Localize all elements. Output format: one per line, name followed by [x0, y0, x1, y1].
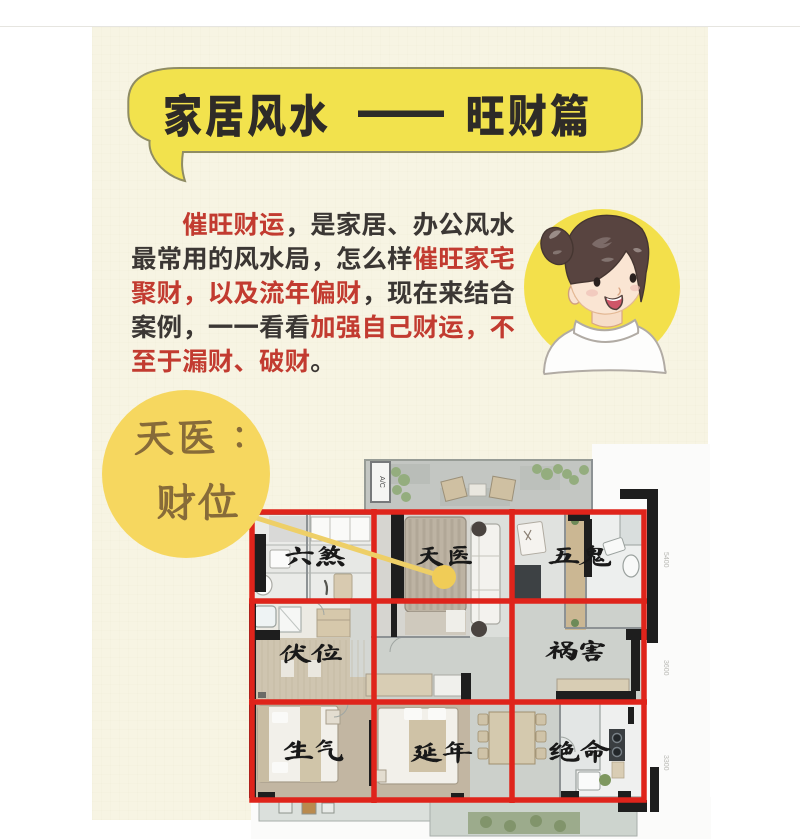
svg-text:3600: 3600 — [662, 660, 669, 676]
svg-text:A/C: A/C — [378, 476, 385, 488]
svg-text:5400: 5400 — [662, 552, 669, 568]
svg-text:3300: 3300 — [662, 755, 669, 771]
